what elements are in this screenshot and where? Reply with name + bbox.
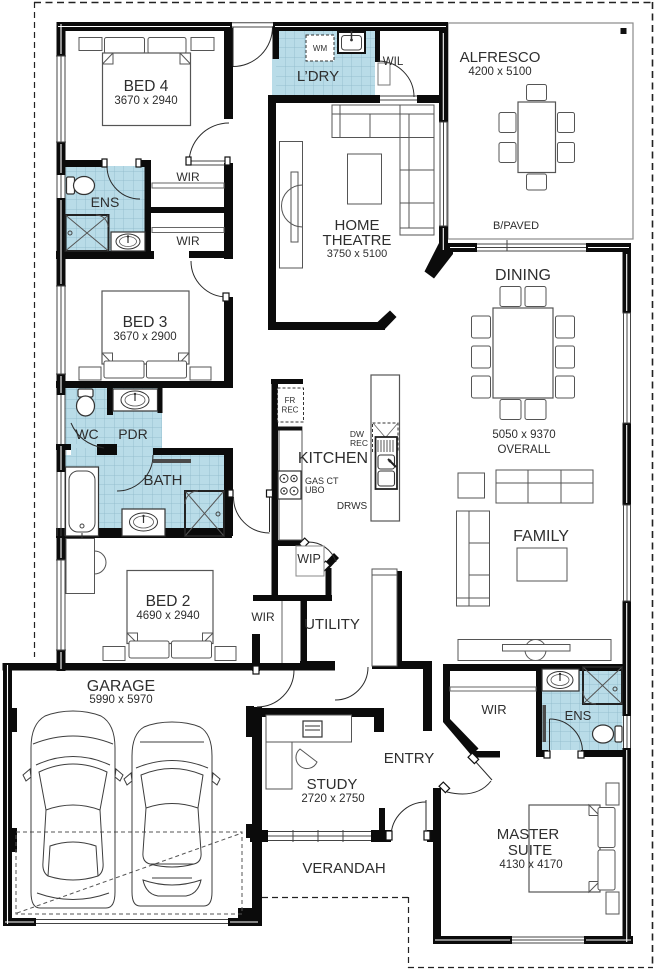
- svg-text:2720 x 2750: 2720 x 2750: [301, 793, 364, 805]
- svg-text:STUDY: STUDY: [307, 776, 358, 793]
- svg-text:REC: REC: [282, 406, 299, 415]
- svg-text:WC: WC: [75, 426, 98, 442]
- svg-text:DRWS: DRWS: [337, 501, 368, 512]
- svg-text:3670 x 2940: 3670 x 2940: [114, 95, 177, 107]
- svg-text:B/PAVED: B/PAVED: [493, 220, 539, 232]
- svg-text:FR: FR: [285, 396, 296, 405]
- svg-text:ALFRESCO: ALFRESCO: [460, 49, 541, 66]
- svg-text:4130 x 4170: 4130 x 4170: [499, 859, 562, 871]
- svg-text:WIR: WIR: [251, 610, 275, 624]
- svg-text:WIP: WIP: [297, 552, 321, 566]
- svg-text:UTILITY: UTILITY: [304, 616, 360, 633]
- svg-text:THEATRE: THEATRE: [323, 232, 392, 249]
- svg-text:5050 x 9370: 5050 x 9370: [492, 429, 555, 441]
- svg-text:3670 x 2900: 3670 x 2900: [113, 331, 176, 343]
- svg-text:L’DRY: L’DRY: [297, 68, 339, 85]
- svg-text:ENTRY: ENTRY: [384, 750, 435, 767]
- svg-text:ENS: ENS: [565, 708, 592, 723]
- svg-text:KITCHEN: KITCHEN: [298, 450, 368, 467]
- svg-text:WIL: WIL: [383, 56, 404, 68]
- svg-text:BED 2: BED 2: [146, 593, 191, 610]
- svg-text:REC: REC: [350, 438, 368, 448]
- svg-text:ENS: ENS: [91, 194, 120, 210]
- svg-text:WIR: WIR: [176, 234, 200, 248]
- svg-text:GARAGE: GARAGE: [87, 678, 155, 695]
- svg-text:BED 4: BED 4: [124, 78, 169, 95]
- svg-text:OVERALL: OVERALL: [497, 444, 551, 456]
- svg-text:WIR: WIR: [481, 702, 506, 717]
- svg-text:VERANDAH: VERANDAH: [302, 860, 385, 877]
- svg-text:MASTER: MASTER: [497, 826, 560, 843]
- svg-text:BED 3: BED 3: [123, 314, 168, 331]
- svg-text:SUITE: SUITE: [508, 842, 552, 859]
- svg-text:FAMILY: FAMILY: [513, 528, 569, 545]
- svg-text:WM: WM: [313, 44, 328, 53]
- svg-text:4200 x 5100: 4200 x 5100: [468, 66, 531, 78]
- svg-text:WIR: WIR: [176, 170, 200, 184]
- svg-text:3750 x 5100: 3750 x 5100: [327, 248, 388, 260]
- svg-text:5990 x 5970: 5990 x 5970: [89, 694, 152, 706]
- svg-text:4690 x 2940: 4690 x 2940: [136, 610, 199, 622]
- svg-text:BATH: BATH: [144, 472, 183, 489]
- svg-text:DINING: DINING: [495, 267, 551, 284]
- svg-text:PDR: PDR: [118, 426, 148, 442]
- svg-text:UBO: UBO: [305, 485, 325, 495]
